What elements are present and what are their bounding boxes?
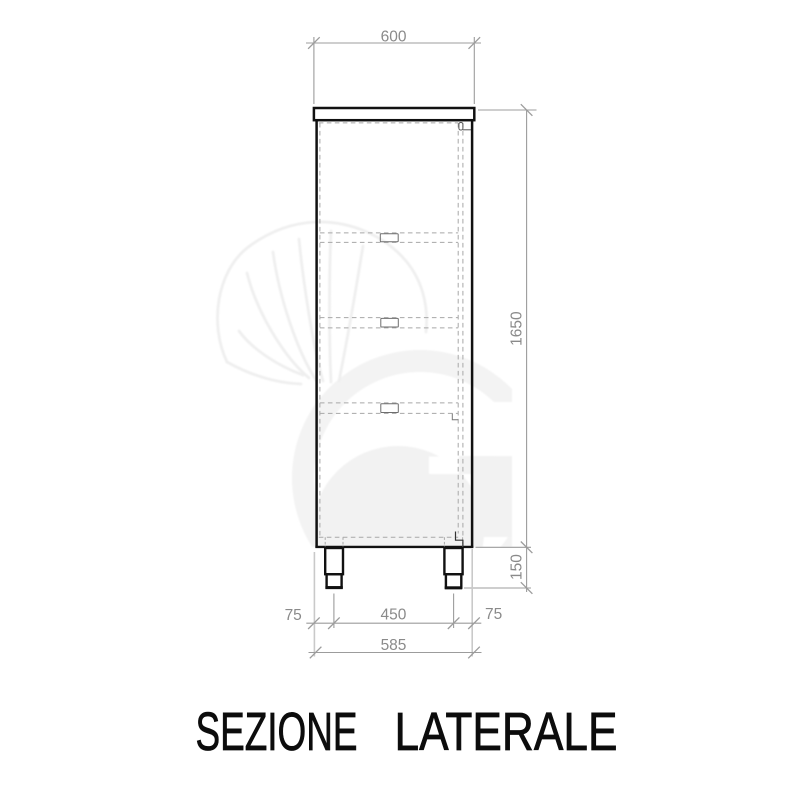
svg-text:600: 600 bbox=[381, 28, 407, 45]
svg-text:450: 450 bbox=[380, 607, 406, 624]
svg-text:1650: 1650 bbox=[509, 311, 526, 346]
svg-text:SEZIONE: SEZIONE bbox=[196, 702, 358, 762]
svg-text:75: 75 bbox=[485, 606, 502, 623]
svg-text:585: 585 bbox=[381, 637, 407, 654]
svg-text:75: 75 bbox=[285, 607, 302, 624]
svg-text:150: 150 bbox=[509, 554, 526, 580]
svg-text:LATERALE: LATERALE bbox=[395, 702, 618, 762]
